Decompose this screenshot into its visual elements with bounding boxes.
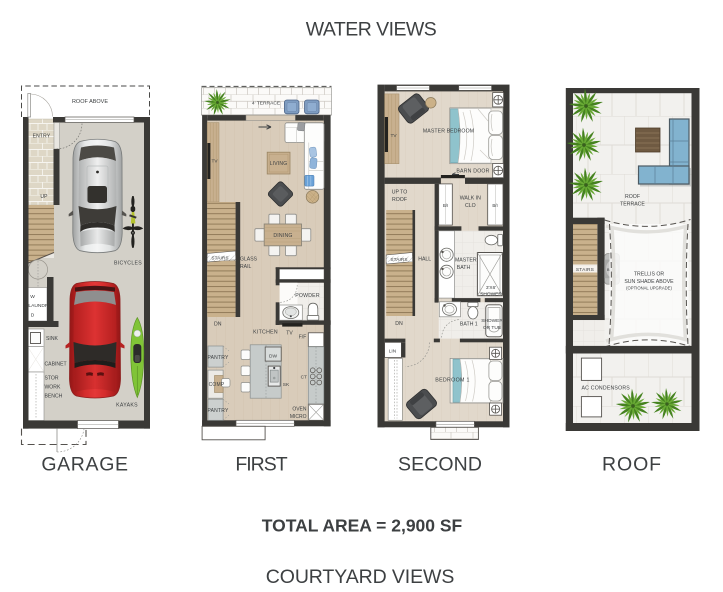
svg-text:OVEN: OVEN [292,407,307,413]
svg-text:3'X6': 3'X6' [486,285,496,291]
svg-text:CABINET: CABINET [45,362,67,368]
svg-text:STAIRS: STAIRS [576,267,594,273]
svg-text:W: W [30,294,35,300]
svg-text:POWDER: POWDER [295,293,320,299]
svg-text:COMP: COMP [209,382,225,388]
svg-text:DN: DN [395,321,403,327]
svg-text:BATH 1: BATH 1 [460,321,478,327]
svg-text:B/I: B/I [492,203,497,208]
svg-text:KAYAKS: KAYAKS [116,403,138,409]
svg-text:COURTYARD VIEWS: COURTYARD VIEWS [266,566,455,588]
svg-text:F/F: F/F [299,335,307,341]
svg-text:BATH: BATH [457,265,471,271]
svg-text:DINING: DINING [273,233,292,239]
svg-text:SINK: SINK [46,336,58,342]
svg-text:MASTER: MASTER [455,258,477,264]
svg-text:SECOND: SECOND [398,454,482,476]
svg-text:TV: TV [391,133,398,139]
svg-text:ROOF ABOVE: ROOF ABOVE [72,99,108,105]
svg-text:OR TUB: OR TUB [483,325,501,331]
svg-text:CLO: CLO [465,203,476,209]
svg-text:TERRACE: TERRACE [620,202,645,208]
svg-text:PANTRY: PANTRY [207,355,228,361]
svg-text:UP: UP [40,194,48,200]
svg-text:STAIRS: STAIRS [211,255,228,260]
svg-text:ROOF: ROOF [392,197,407,203]
svg-text:WORK: WORK [45,385,61,391]
svg-text:LIVING: LIVING [270,161,288,167]
svg-text:RAIL: RAIL [240,264,251,270]
svg-text:HALL: HALL [418,256,431,262]
svg-text:DN: DN [214,322,222,328]
svg-text:SK: SK [283,382,290,388]
svg-text:UP TO: UP TO [392,190,408,196]
svg-text:BARN DOOR: BARN DOOR [456,169,489,175]
svg-text:ROOF: ROOF [602,454,662,476]
svg-text:MICRO: MICRO [290,414,307,420]
svg-text:TOTAL AREA = 2,900 SF: TOTAL AREA = 2,900 SF [262,515,463,535]
svg-text:BEDROOM 1: BEDROOM 1 [435,378,470,384]
svg-text:SHOWER: SHOWER [481,318,503,324]
svg-text:MASTER BEDROOM: MASTER BEDROOM [423,129,474,135]
svg-text:4' TERRACE: 4' TERRACE [252,101,281,107]
svg-text:WALK IN: WALK IN [460,196,481,202]
svg-text:STAIRS: STAIRS [390,257,407,262]
svg-text:WATER VIEWS: WATER VIEWS [306,19,437,41]
svg-text:CT: CT [301,374,307,380]
svg-text:(OPTIONAL UPGRADE): (OPTIONAL UPGRADE) [626,286,672,291]
svg-text:GLASS: GLASS [240,256,258,262]
svg-text:ENTRY: ENTRY [33,134,51,140]
svg-text:SUN SHADE ABOVE: SUN SHADE ABOVE [624,279,674,285]
svg-text:GARAGE: GARAGE [41,454,128,476]
svg-text:ROOF: ROOF [625,194,640,200]
svg-text:FIRST: FIRST [235,454,287,476]
svg-text:D: D [31,313,35,319]
svg-text:BICYCLES: BICYCLES [114,261,142,267]
svg-text:DW: DW [269,353,277,359]
svg-text:LIN: LIN [389,348,397,354]
svg-text:AC CONDENSORS: AC CONDENSORS [582,386,631,392]
svg-text:STOR: STOR [45,376,59,382]
svg-text:TV: TV [286,330,293,336]
svg-text:KITCHEN: KITCHEN [253,330,278,336]
svg-text:BENCH: BENCH [45,394,63,400]
svg-text:TRELLIS OR: TRELLIS OR [634,271,665,277]
svg-text:SHOWER: SHOWER [480,291,502,297]
svg-text:B/I: B/I [443,203,448,208]
svg-text:PANTRY: PANTRY [207,408,228,414]
svg-text:TV: TV [212,159,219,165]
